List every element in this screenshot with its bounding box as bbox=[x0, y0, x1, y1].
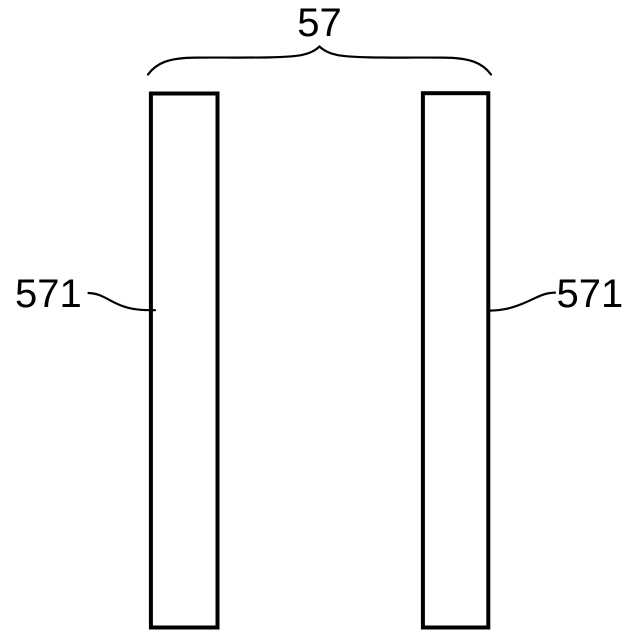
svg-text:571: 571 bbox=[15, 272, 82, 316]
svg-text:571: 571 bbox=[557, 272, 624, 316]
svg-text:57: 57 bbox=[297, 1, 342, 45]
